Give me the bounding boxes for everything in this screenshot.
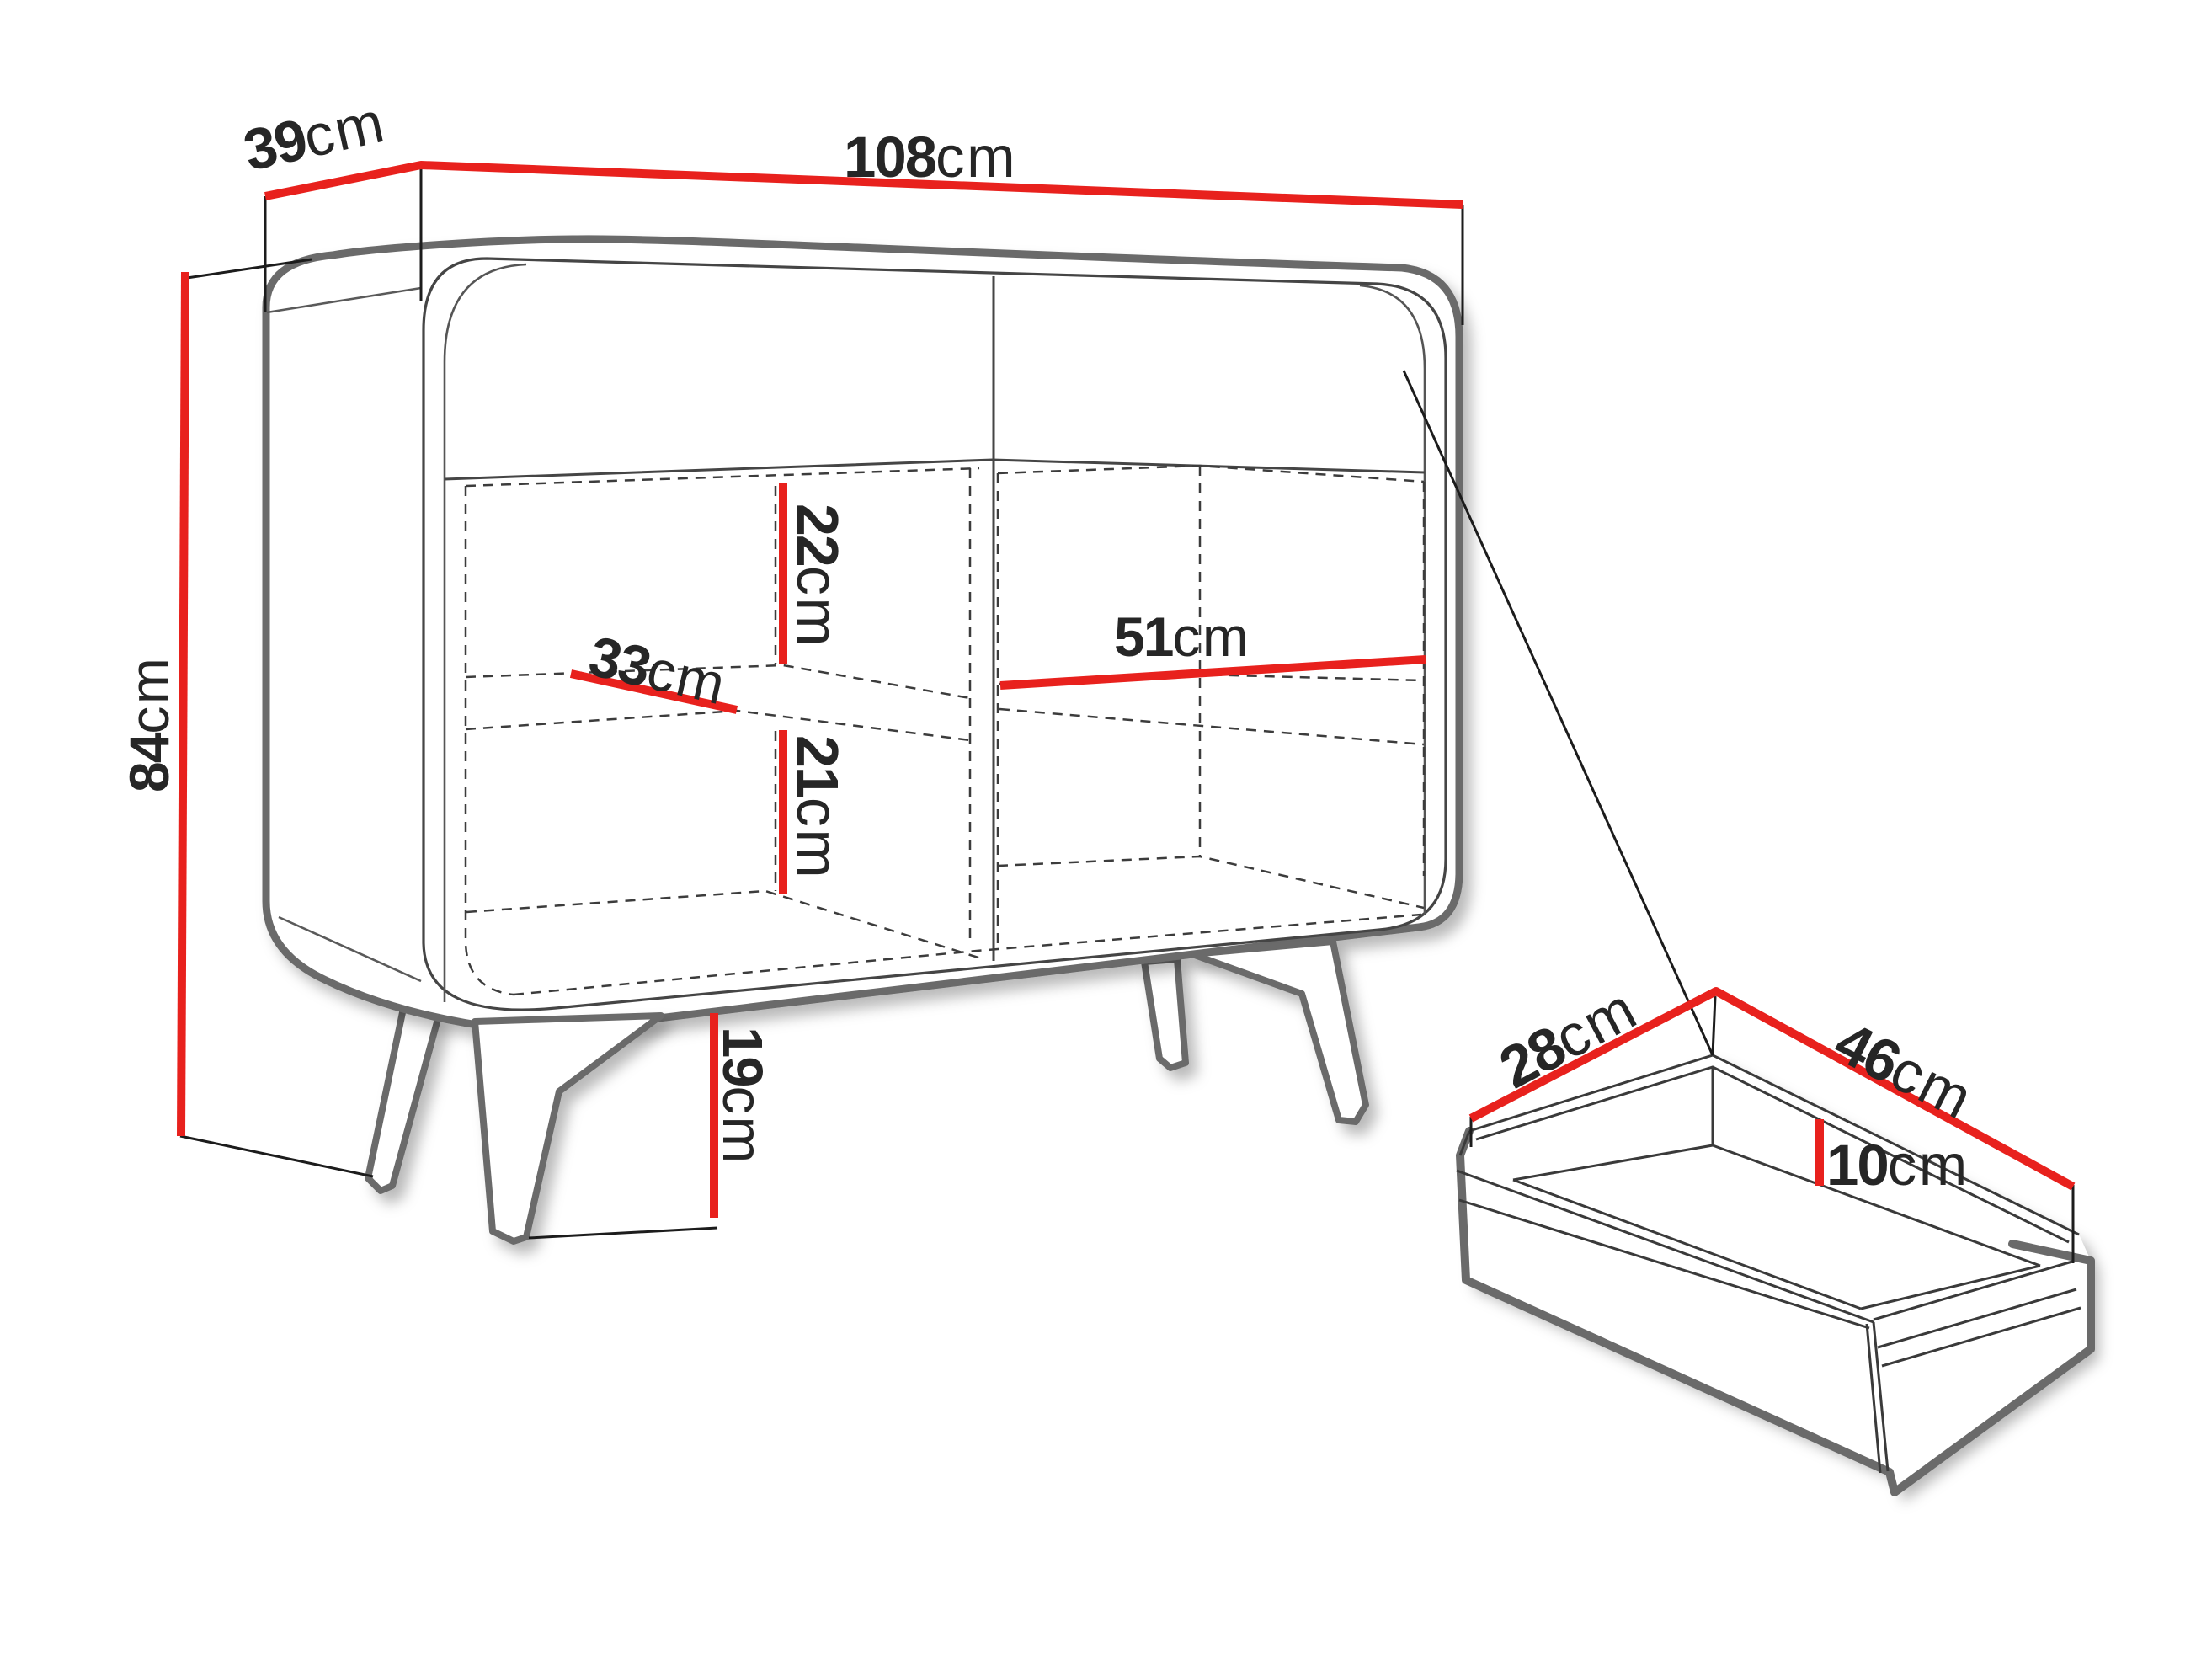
svg-text:21cm: 21cm (785, 735, 850, 880)
svg-text:84cm: 84cm (118, 656, 180, 792)
svg-text:108cm: 108cm (844, 125, 1017, 189)
svg-text:51cm: 51cm (1114, 605, 1250, 668)
svg-text:19cm: 19cm (711, 1027, 774, 1166)
svg-text:10cm: 10cm (1826, 1133, 1969, 1198)
svg-text:22cm: 22cm (785, 504, 850, 648)
